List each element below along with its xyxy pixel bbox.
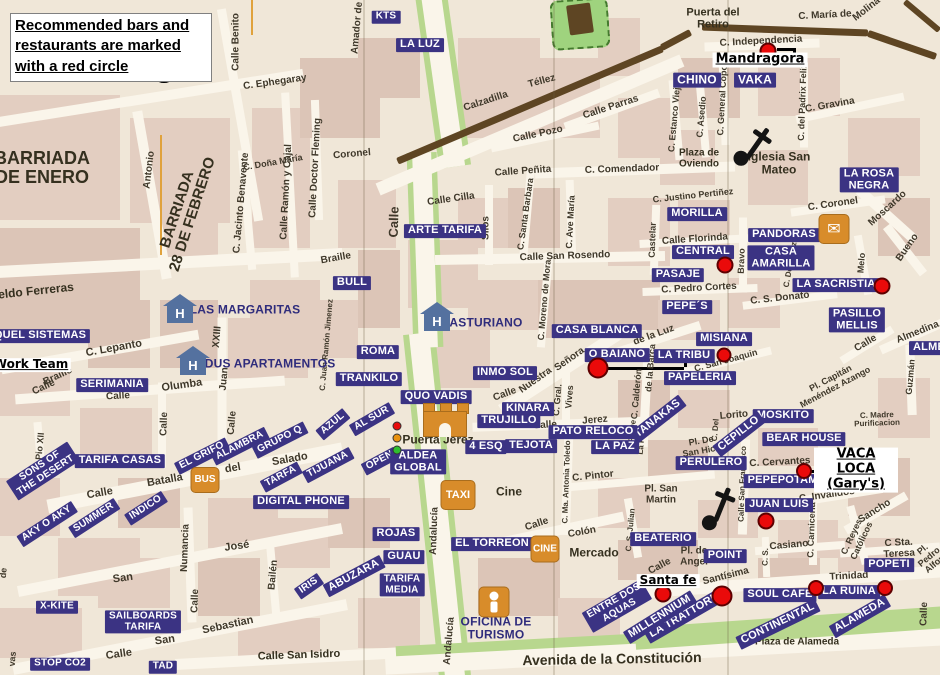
shop-label-al-sur: AL SUR — [349, 402, 395, 436]
shop-label-vaka: VAKA — [734, 73, 776, 88]
shop-label-tarifa-media: TARIFA MEDIA — [380, 573, 425, 596]
tarifa-street-map: Recommended bars and restaurants are mar… — [0, 0, 940, 675]
legend-line-3: with a red circle — [15, 57, 207, 77]
shop-label-papeleria: PAPELERIA — [664, 371, 736, 385]
shop-label-rojas: ROJAS — [373, 527, 420, 541]
shop-label-stop-co2: STOP CO2 — [30, 658, 90, 671]
shop-label-la-paz: LA PAZ — [591, 440, 639, 454]
street-name-calle: Calle — [919, 602, 930, 626]
shop-label-tejota: TEJOTA — [505, 439, 557, 453]
shop-label-morilla: MORILLA — [667, 207, 727, 221]
street-name-trinidad: Trinidad — [829, 571, 868, 584]
street-name-vas: vas — [8, 651, 19, 667]
street-name-c-mar-a-de: C. María de — [798, 9, 852, 22]
shop-label-la-ruina: LA RUINA — [818, 585, 880, 599]
street-name-calle: Calle — [159, 412, 170, 436]
venue-label-oficina-de-turismo: OFICINA DE TURISMO — [461, 615, 532, 640]
city-wall — [903, 0, 940, 33]
place-name-cine: Cine — [496, 486, 522, 499]
recommended-spot-circle — [877, 580, 893, 596]
street-name-andaluc-a: Andalucía — [429, 507, 441, 555]
tourist-office-icon — [479, 587, 510, 618]
building-block — [80, 408, 152, 458]
street-name-pl-capit-n-men-ndez-azango: Pl. Capitán Menéndez Azango — [794, 356, 872, 410]
shop-label-quel-sistemas: QUEL SISTEMAS — [0, 329, 90, 343]
puerta-jerez-gate-icon — [423, 403, 467, 437]
transport-icon-cine: CINE — [531, 536, 560, 563]
shop-label-inmo-sol: INMO SOL — [473, 366, 537, 380]
shop-label-serimania: SERIMANIA — [76, 378, 148, 392]
place-name-barriada-de-enero: BARRIADA DE ENERO — [0, 149, 90, 187]
shop-label-x-kite: X-KITE — [36, 601, 78, 614]
shop-label-pasaje: PASAJE — [652, 268, 704, 282]
shop-label-misiana: MISIANA — [696, 332, 752, 346]
street-name-c-coronel: C. Coronel — [807, 196, 859, 214]
street-name-castelar: Castelar — [648, 222, 659, 258]
annotation-work-team: Work Team — [0, 358, 71, 372]
recommended-spot-circle — [717, 257, 734, 274]
place-name-puerta-del-retiro: Puerta del Retiro — [686, 7, 739, 30]
traffic-amber-icon — [393, 434, 402, 443]
street-name-coronel: Coronel — [333, 148, 372, 162]
street-name-bail-n: Bailén — [267, 560, 280, 591]
street-name-calle: Calle — [227, 411, 240, 436]
shop-label-la-sacristia: LA SACRISTIA — [793, 278, 880, 292]
annotation-santa-fe: Santa fe — [637, 574, 700, 588]
city-wall — [566, 2, 594, 35]
shop-label-beaterio: BEATERIO — [630, 532, 696, 546]
shop-label-chino: CHINO — [673, 73, 721, 88]
street-name-xxiii: XXIII — [212, 326, 224, 349]
place-name-plaza-de-alameda: Plaza de Alameda — [755, 638, 839, 649]
shop-label-arte-tarifa: ARTE TARIFA — [404, 224, 486, 238]
shop-label-pandoras: PANDORAS — [748, 228, 820, 242]
shop-label-iris: IRIS — [294, 573, 324, 600]
street-edge-line — [251, 0, 253, 35]
shop-label-bull: BULL — [333, 276, 371, 290]
shop-label-el-torreon: EL TORREON — [451, 537, 533, 551]
building-block — [198, 558, 260, 616]
shop-label-pato-reloco: PATO RELOCO — [548, 425, 637, 439]
pointer-line — [777, 48, 793, 51]
shop-label-tad: TAD — [149, 661, 177, 674]
recommended-spot-circle — [655, 586, 672, 603]
venue-label-las-margaritas: LAS MARGARITAS — [190, 304, 301, 317]
street-name-c-ma-antonia-toledo: C. Ma. Antonia Toledo — [561, 440, 572, 523]
street-name-calle: Calle — [387, 206, 402, 238]
shop-label-perulero: PERULERO — [676, 456, 747, 470]
shop-label-la-luz: LA LUZ — [396, 38, 444, 52]
transport-icon-taxi: TAXI — [441, 480, 476, 510]
venue-label-asturiano: ASTURIANO — [449, 317, 522, 330]
city-wall — [660, 29, 692, 51]
traffic-red-icon — [393, 422, 402, 431]
shop-label-digital-phone: DIGITAL PHONE — [253, 495, 349, 509]
street-name-c-madre-purificacion: C. Madre Purificacion — [845, 410, 909, 429]
traffic-green-icon — [393, 446, 402, 455]
legend-line-1: Recommended bars and — [15, 16, 207, 36]
street-name-pl-san-martin: Pl. San Martin — [644, 484, 677, 505]
shop-label-tarifa-casas: TARIFA CASAS — [75, 454, 165, 468]
street-name-vives: Vives — [564, 385, 576, 409]
annotation-vaca-loca-gary-s: VACA LOCA (Gary's) — [814, 448, 898, 493]
street-name-col-n: Colón — [567, 525, 597, 540]
annotation-mandragora: Mandragora — [713, 53, 808, 68]
hotel-h: H — [180, 357, 206, 375]
hotel-icon: H — [420, 302, 454, 332]
info-head — [490, 592, 499, 601]
place-name-mercado: Mercado — [569, 547, 618, 560]
shop-label-la-rosa-negra: LA ROSA NEGRA — [840, 167, 899, 192]
transport-icon-bus: BUS — [191, 467, 220, 493]
hotel-h: H — [424, 313, 450, 331]
street-name-c-pedro-cortes: C. Pedro Cortes — [661, 282, 737, 297]
street-name-numancia: Numancia — [180, 524, 192, 572]
gate-arch — [439, 423, 451, 437]
shop-label-azul: AZUL — [315, 408, 350, 440]
shop-label-kts: KTS — [372, 11, 401, 24]
shop-label-abuzara: ABUZARA — [323, 555, 386, 597]
venue-label-edus-apartamentos: EDUS APARTAMENTOS — [197, 358, 336, 371]
building-block — [358, 598, 420, 648]
street-name-c-s: C. S. — [761, 548, 770, 566]
shop-label-trankilo: TRANKILO — [336, 372, 402, 386]
street-name-calle: Calle — [105, 647, 133, 662]
hotel-h: H — [167, 305, 193, 323]
shop-label-point: POINT — [704, 549, 747, 563]
street-name-bravo: Bravo — [737, 248, 747, 274]
shop-label-pepe-s: PEPE´S — [662, 300, 712, 314]
street-name-calle: Calle — [853, 333, 879, 354]
recommended-spot-circle — [717, 348, 732, 363]
shop-label-juan-luis: JUAN LUIS — [745, 498, 813, 512]
street-name-melo: Melo — [856, 252, 867, 273]
shop-label-roma: ROMA — [357, 345, 399, 359]
shop-label-guau: GUAU — [383, 550, 424, 564]
recommended-spot-circle — [874, 278, 891, 295]
shop-label-4-esq: 4 ESQ — [465, 440, 506, 454]
street-name-molina: Molina — [851, 0, 882, 24]
hotel-icon: H — [163, 294, 197, 324]
city-wall — [867, 30, 937, 60]
shop-label-pasillo-mellis: PASILLO MELLIS — [829, 307, 885, 332]
recommended-spot-circle — [808, 580, 824, 596]
shop-label-quo-vadis: QUO VADIS — [401, 390, 472, 404]
shop-label-trujillo: TRUJILLO — [477, 414, 540, 428]
street-name-de: de — [0, 567, 9, 578]
map-legend: Recommended bars and restaurants are mar… — [10, 13, 212, 82]
post-office-icon: ✉ — [819, 214, 850, 244]
shop-label-casa-amarilla: CASA AMARILLA — [747, 245, 814, 270]
recommended-spot-circle — [758, 513, 775, 530]
recommended-spot-circle — [588, 358, 609, 379]
shop-label-sailboards-tarifa: SAILBOARDS TARIFA — [105, 610, 181, 633]
recommended-spot-circle — [796, 463, 812, 479]
place-name-plaza-de-oviendo: Plaza de Oviendo — [679, 148, 719, 169]
street-name-braille: Braille — [320, 251, 352, 267]
street-name-calle: Calle — [190, 589, 201, 613]
shop-label-alme: ALME — [909, 341, 940, 355]
street-name-c-comendador: C. Comendador — [585, 163, 660, 176]
shop-label-casa-blanca: CASA BLANCA — [552, 324, 642, 338]
info-stem — [491, 602, 498, 613]
shop-label-bear-house: BEAR HOUSE — [762, 432, 845, 446]
street-name-calle: Calle — [106, 391, 130, 403]
street-name-calle-benito: Calle Benito — [232, 13, 243, 71]
shop-label-la-tribu: LA TRIBU — [654, 349, 715, 363]
shop-label-popeti: POPETI — [864, 558, 914, 572]
street-name-san: San — [154, 634, 176, 648]
hotel-icon: H — [176, 346, 210, 376]
shop-label-soul-cafe: SOUL CAFE — [743, 588, 816, 602]
legend-line-2: restaurants are marked — [15, 36, 207, 56]
place-name-avenida-de-la-constituci-n: Avenida de la Constitución — [522, 650, 701, 668]
recommended-spot-circle — [712, 586, 733, 607]
